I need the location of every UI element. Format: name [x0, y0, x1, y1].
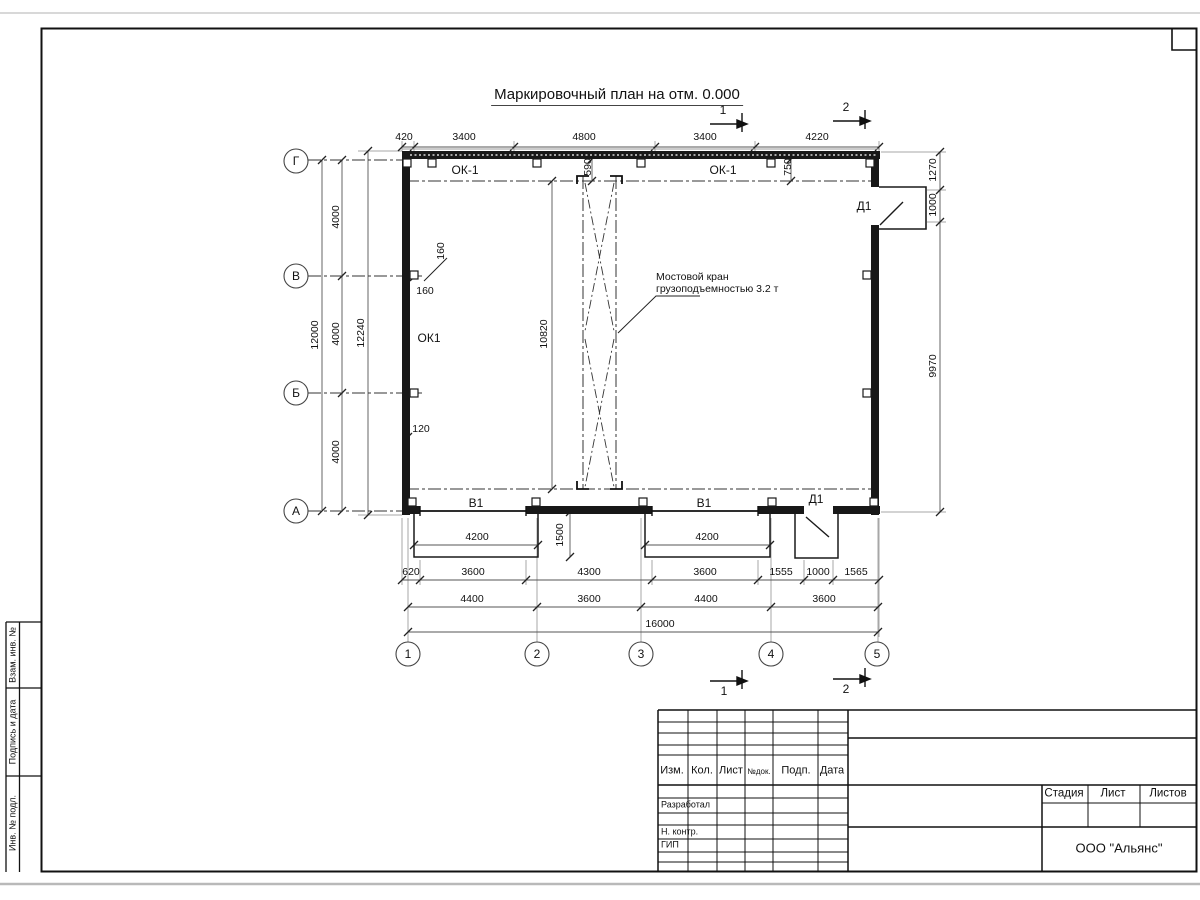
plan-title: Маркировочный план на отм. 0.000 [491, 86, 743, 106]
tb-row-gip: ГИП [661, 841, 679, 850]
plan-dims-bottom_row1-2: 4300 [577, 567, 600, 578]
tb-col-list: Лист [719, 766, 743, 777]
plan-dims-right-1: 1000 [928, 193, 939, 216]
plan-section_marks_top-0: 1 [720, 104, 727, 116]
plan-dims-top-2: 4800 [572, 132, 595, 143]
tb-sheets: Листов [1149, 788, 1186, 800]
tb-col-kol: Кол. [691, 766, 713, 777]
plan-crane_note-1: грузоподъемностью 3.2 т [656, 284, 778, 295]
plan-dims-left-2: 4000 [331, 322, 342, 345]
plan-axes_rows-3: А [292, 505, 300, 517]
plan-dims-top-4: 4220 [805, 132, 828, 143]
plan-dims-bottom_row1-3: 3600 [693, 567, 716, 578]
plan-door_labels-0: Д1 [857, 200, 872, 212]
plan-gate_labels-1: В1 [697, 497, 712, 509]
plan-dims-right-0: 1270 [928, 158, 939, 181]
plan-dims-bottom_total-0: 16000 [645, 619, 674, 630]
tb-col-data: Дата [820, 766, 844, 777]
tb-row-razrabotal: Разработал [661, 801, 710, 810]
tb-col-izm: Изм. [660, 766, 684, 777]
plan-dims-left-0: 12000 [310, 320, 321, 349]
company-name: ООО "Альянс" [1076, 842, 1163, 855]
plan-dims-bottom_row1-4: 1555 [769, 567, 792, 578]
tb-col-ndok: №док. [747, 768, 770, 776]
tb-col-podp: Подп. [781, 766, 810, 777]
drawing-sheet: Маркировочный план на отм. 0.000 Изм. Ко… [0, 0, 1200, 900]
plan-axes_cols-3: 4 [768, 648, 775, 660]
plan-axes_rows-2: Б [292, 387, 300, 399]
plan-door_labels-1: Д1 [809, 493, 824, 505]
plan-dims-inner-0: 10820 [539, 319, 550, 348]
tb-row-nkontr: Н. контр. [661, 828, 698, 837]
plan-dims-inner-3: 160 [436, 242, 447, 260]
plan-dims-inner-4: 160 [416, 286, 434, 297]
plan-dims-bottom_row2-1: 3600 [577, 594, 600, 605]
plan-axes_rows-0: Г [293, 155, 300, 167]
plan-dims-left-1: 4000 [331, 205, 342, 228]
plan-section_marks_top-1: 2 [843, 101, 850, 113]
plan-section_marks_bottom-1: 2 [843, 683, 850, 695]
plan-axes_cols-0: 1 [405, 648, 412, 660]
side-label-vzam: Взам. инв. № [9, 627, 18, 683]
plan-section_marks_bottom-0: 1 [721, 685, 728, 697]
side-label-podpis: Подпись и дата [9, 700, 18, 765]
plan-window_labels-1: ОК-1 [710, 164, 737, 176]
plan-dims-inner-2: 750 [783, 158, 794, 176]
plan-dims-bottom_row1-1: 3600 [461, 567, 484, 578]
plan-dims-bottom_gate-1: 4200 [695, 532, 718, 543]
plan-dims-left-4: 12240 [356, 318, 367, 347]
plan-gate_labels-0: В1 [469, 497, 484, 509]
plan-dims-inner-5: 120 [412, 424, 430, 435]
tb-stage: Стадия [1044, 788, 1083, 800]
plan-dims-inner-1: 590 [583, 158, 594, 176]
plan-dims-bottom_row2-3: 3600 [812, 594, 835, 605]
plan-axes_cols-4: 5 [874, 648, 881, 660]
tb-sheet: Лист [1101, 788, 1126, 800]
plan-dims-bottom_row2-0: 4400 [460, 594, 483, 605]
plan-crane_note-0: Мостовой кран [656, 272, 729, 283]
plan-dims-top-3: 3400 [693, 132, 716, 143]
plan-dims-top-0: 420 [395, 132, 413, 143]
plan-axes_cols-1: 2 [534, 648, 541, 660]
plan-dims-top-1: 3400 [452, 132, 475, 143]
drawing-linework [0, 0, 1200, 900]
plan-window_labels-2: ОК1 [418, 332, 441, 344]
plan-axes_rows-1: В [292, 270, 300, 282]
plan-window_labels-0: ОК-1 [452, 164, 479, 176]
plan-dims-left-3: 4000 [331, 440, 342, 463]
plan-dims-right-2: 9970 [928, 354, 939, 377]
plan-dims-bottom_row2-2: 4400 [694, 594, 717, 605]
plan-dims-bottom_row1-0: 620 [402, 567, 420, 578]
plan-dims-bottom_gate-2: 1500 [555, 523, 566, 546]
plan-dims-bottom_row1-6: 1565 [844, 567, 867, 578]
plan-dims-bottom_gate-0: 4200 [465, 532, 488, 543]
plan-dims-bottom_row1-5: 1000 [806, 567, 829, 578]
side-label-inv: Инв. № подл. [9, 795, 18, 851]
plan-axes_cols-2: 3 [638, 648, 645, 660]
